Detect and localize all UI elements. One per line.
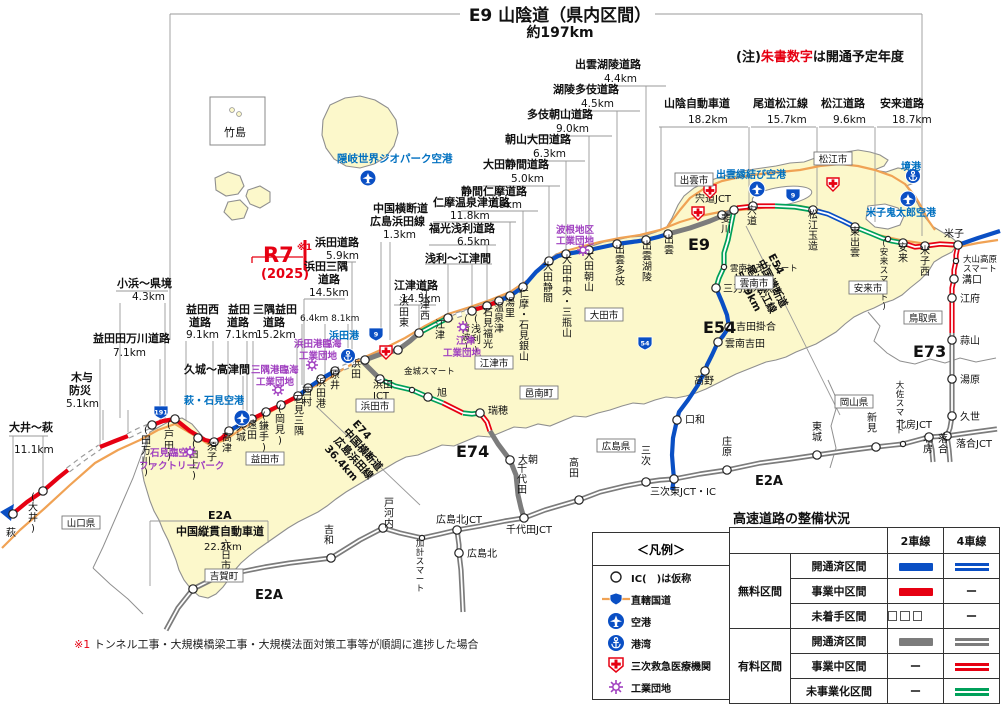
map-text-防災: 防災 [69, 383, 92, 397]
takeshima-label: 竹島 [224, 125, 246, 139]
ic-label-大朝: 大朝 [518, 453, 538, 466]
legend-item-label: 直轄国道 [631, 592, 671, 607]
map-text-18.7km: 18.7km [892, 114, 932, 126]
ic-node-庄原 [723, 466, 731, 474]
map-text-22.3km: 22.3km [204, 542, 242, 553]
page-subtitle: 約197km [400, 22, 720, 42]
ic-label-高津: 高津 [222, 431, 232, 455]
landmass-oki_c [224, 200, 248, 220]
industrial-park-icon-3 [457, 321, 469, 333]
ic-label-戸河内: 戸河内 [384, 497, 394, 530]
area-box-label-大田市: 大田市 [590, 310, 619, 322]
map-text-9.6km: 9.6km [833, 114, 866, 126]
ic-label-東出雲: 東出雲 [850, 225, 860, 259]
cell-4lane-開通済区間 [944, 629, 1000, 654]
status-row-無料区間-開通済区間: 無料区間開通済区間 [730, 554, 1000, 579]
swatch-double-gray [955, 636, 989, 648]
area-box-label-江津市: 江津市 [480, 358, 509, 370]
footnote-mark: ※1 [74, 638, 90, 651]
map-text-5.0km: 5.0km [511, 173, 544, 185]
ic-node-宍道JCT [730, 206, 738, 214]
map-text-大田静間道路: 大田静間道路 [483, 157, 550, 171]
ic-label-出雲: 出雲 [664, 233, 674, 257]
col-header-4車線: 4車線 [944, 528, 1000, 554]
legend-item-label: 三次救急医療機関 [631, 658, 711, 673]
map-text-江津: 江津 [456, 335, 476, 347]
area-box-label-鳥取県: 鳥取県 [909, 313, 938, 325]
map-text-久城～高津間: 久城～高津間 [184, 362, 250, 376]
ic-node-口和 [673, 416, 681, 424]
ic-node-浜田東 [394, 346, 402, 354]
ic-label-大田中央・三瓶山: 大田中央・三瓶山 [562, 253, 572, 340]
cell-2lane-未事業化区間: ー [888, 679, 944, 704]
map-text-4.3km: 4.3km [132, 291, 165, 303]
map-text-工業団地: 工業団地 [299, 350, 338, 362]
cell-4lane-事業中区間 [944, 654, 1000, 679]
cell-4lane-未着手区間: ー [944, 604, 1000, 629]
area-box-label-益田市: 益田市 [251, 454, 280, 466]
status-label-開通済区間: 開通済区間 [791, 629, 888, 654]
red-number-note: (注)朱書数字は開通予定年度 [736, 46, 904, 65]
map-text-境港: 境港 [901, 160, 922, 173]
cell-2lane-開通済区間 [888, 629, 944, 654]
legend-box: ＜凡例＞ IC( )は仮称直轄国道空港港湾三次救急医療機関工業団地 [592, 532, 730, 700]
legend-title: ＜凡例＞ [593, 533, 729, 566]
ic-label-西村: 西村 [302, 387, 312, 409]
ic-label-大田朝山: 大田朝山 [584, 249, 594, 294]
ic-label-三次: 三次 [641, 446, 651, 468]
map-text-E2A: E2A [255, 588, 283, 603]
map-text-E54: E54 [703, 318, 736, 337]
sanin-expressway-map: 竹島萩(大井)(田万川)(戸田)(白上)須子高津久城遠田(鎌手)(岡見)石見三隅… [0, 0, 1001, 704]
note-suffix: は開通予定年度 [813, 50, 904, 65]
map-text-道路: 道路 [318, 272, 341, 286]
ic-node-金城スマート [409, 387, 414, 392]
ic-node-江津 [444, 314, 452, 322]
ic-node-雲南吉田 [714, 338, 722, 346]
col-header-2車線: 2車線 [888, 528, 944, 554]
map-text-(2025): (2025) [261, 267, 309, 282]
map-text-道路: 道路 [227, 315, 250, 329]
ic-label-米子: 米子 [944, 227, 964, 240]
status-label-未事業化区間: 未事業化区間 [791, 679, 888, 704]
ic-node-六日市 [189, 585, 197, 593]
map-text-E74: E74 [456, 442, 489, 461]
ic-label-安来: 安来 [898, 241, 908, 265]
landmass-oki_a [215, 172, 244, 196]
ic-label-出雲湖陵: 出雲湖陵 [642, 239, 652, 284]
cell-4lane-未事業化区間 [944, 679, 1000, 704]
ic-node-東城 [813, 451, 821, 459]
status-label-開通済区間: 開通済区間 [791, 554, 888, 579]
map-text-18.2km: 18.2km [688, 114, 728, 126]
ic-label-雲南吉田: 雲南吉田 [725, 337, 765, 350]
map-text-浜田三隅: 浜田三隅 [304, 259, 348, 273]
map-text-三隅港臨海: 三隅港臨海 [251, 364, 299, 376]
ic-label-宍道: 宍道 [747, 204, 757, 228]
swatch-bar-blue [899, 563, 933, 571]
area-box-label-岡山県: 岡山県 [840, 398, 869, 409]
route-shield-191: 191 [154, 406, 168, 419]
road-segment-e2a-hiroshima [457, 530, 463, 612]
status-table-title: 高速道路の整備状況 [733, 508, 850, 527]
ic-node-(大井) [39, 487, 47, 495]
ic-label-瑞穂: 瑞穂 [488, 404, 508, 417]
map-text-E73: E73 [913, 342, 946, 361]
ic-node-三次 [642, 478, 650, 486]
area-box-label-山口県: 山口県 [67, 519, 96, 530]
legend-item-label: 空港 [631, 614, 651, 629]
ic-label-庄原: 庄原 [722, 435, 732, 459]
map-text-15.2km: 15.2km [256, 329, 296, 341]
ic-label-口和: 口和 [685, 414, 705, 426]
no-lane-dash: ー [966, 585, 977, 598]
area-box-label-邑南町: 邑南町 [525, 388, 554, 400]
cell-2lane-開通済区間 [888, 554, 944, 579]
road-segment-e9-kiyo-bosai [100, 436, 128, 447]
ic-node-久世 [948, 412, 956, 420]
swatch-double-blue [955, 561, 989, 573]
map-text-6.4km 8.1km: 6.4km 8.1km [300, 314, 359, 324]
map-text-木与: 木与 [70, 370, 93, 384]
ic-label-蒜山: 蒜山 [960, 335, 980, 347]
ic-label-千代田JCT: 千代田JCT [506, 524, 553, 536]
map-text-浜田道路: 浜田道路 [315, 235, 360, 249]
road-segment-e9-dash-1 [68, 447, 100, 470]
status-table: 2車線4車線無料区間開通済区間事業中区間ー未着手区間ー有料区間開通済区間事業中区… [729, 527, 1000, 704]
cell-2lane-未着手区間 [888, 604, 944, 629]
map-text-ファクトリーパーク: ファクトリーパーク [139, 460, 224, 472]
map-text-福光浅利道路: 福光浅利道路 [428, 221, 496, 235]
ic-label-湯原: 湯原 [960, 373, 980, 386]
ic-node-蒜山 [948, 336, 956, 344]
map-text-E2A: E2A [208, 509, 232, 522]
swatch-bar-red [899, 588, 933, 596]
area-box-label-浜田市: 浜田市 [361, 401, 390, 413]
group-cell-無料区間: 無料区間 [730, 554, 791, 629]
cell-4lane-事業中区間: ー [944, 579, 1000, 604]
ic-label-大田静間: 大田静間 [543, 260, 553, 305]
ic-label-落合: 落合 [938, 433, 948, 456]
ic-node-雲南加茂スマート [721, 264, 726, 269]
map-text-松江道路: 松江道路 [821, 96, 866, 110]
map-text-道路: 道路 [189, 315, 212, 329]
airport-icon-米子鬼太郎空港 [900, 191, 916, 207]
area-box-label-松江市: 松江市 [819, 154, 848, 166]
swatch-bar-gray [899, 638, 933, 646]
airport-icon-隠岐世界ジオパーク空港 [360, 170, 376, 186]
map-text-小浜～県境: 小浜～県境 [116, 276, 172, 290]
ic-label-広島北: 広島北 [467, 547, 497, 560]
ic-label-斐川: 斐川 [721, 213, 731, 236]
ic-node-萩 [9, 510, 17, 518]
legend-item-label: IC( )は仮称 [631, 570, 691, 585]
ic-label-江府: 江府 [960, 292, 980, 305]
ic-label-広島北JCT: 広島北JCT [436, 513, 483, 526]
swatch-double-green [955, 686, 989, 698]
map-text-中国横断道: 中国横断道 [373, 201, 428, 215]
swatch-double-red [955, 661, 989, 673]
map-text-湖陵多伎道路: 湖陵多伎道路 [553, 82, 620, 96]
legend-item-label: 工業団地 [631, 680, 671, 695]
ic-label-新見: 新見 [867, 411, 877, 435]
map-text-中国縦貫自動車道: 中国縦貫自動車道 [176, 524, 264, 538]
no-lane-dash: ー [966, 610, 977, 623]
airport-icon-出雲縁結び空港 [749, 181, 765, 197]
status-row-有料区間-開通済区間: 有料区間開通済区間 [730, 629, 1000, 654]
map-text-山陰自動車道: 山陰自動車道 [664, 96, 730, 110]
map-text-広島浜田線: 広島浜田線 [370, 214, 425, 228]
ic-label-萩: 萩 [6, 527, 16, 539]
ic-label-久世: 久世 [960, 411, 980, 423]
ic-label-三次東JCT・IC: 三次東JCT・IC [650, 485, 716, 498]
map-text-浅利～江津間: 浅利～江津間 [425, 251, 491, 265]
footnote: ※1 トンネル工事・大規模橋梁工事・大規模法面対策工事等が順調に進捗した場合 [74, 636, 479, 652]
map-text-朝山大田道路: 朝山大田道路 [505, 132, 572, 146]
ic-label-(安来スマート): (安来スマート) [880, 239, 889, 312]
ic-node-瑞穂 [476, 409, 484, 417]
ic-label-落合JCT: 落合JCT [956, 437, 993, 450]
ic-node-大朝 [506, 456, 514, 464]
map-text-※1: ※1 [297, 242, 312, 253]
map-text-15.7km: 15.7km [767, 114, 807, 126]
ic-label-米子西: 米子西 [920, 244, 930, 278]
cell-4lane-開通済区間 [944, 554, 1000, 579]
ic-label-湯里: 湯里 [505, 296, 515, 320]
ic-node-湯原 [948, 375, 956, 383]
ic-label-千代田: 千代田 [517, 463, 527, 496]
ic-label-吉田掛合: 吉田掛合 [736, 320, 776, 333]
ic-node-高田 [575, 496, 583, 504]
ic-node-(戸田) [171, 415, 179, 423]
map-text-11.8km: 11.8km [450, 210, 490, 222]
industrial-icon [601, 678, 631, 696]
ic-node-三次東JCT・IC [670, 475, 678, 483]
ic-label-大山高原スマート: 大山高原スマート [963, 254, 997, 275]
group-cell-有料区間: 有料区間 [730, 629, 791, 704]
ic-label-大佐スマート: 大佐スマート [896, 380, 905, 436]
port-icon-浜田港 [341, 349, 356, 364]
map-text-14.5km: 14.5km [401, 293, 441, 305]
map-text-大井～萩: 大井～萩 [9, 420, 53, 434]
ic-node-高野 [701, 367, 709, 375]
status-label-未着手区間: 未着手区間 [791, 604, 888, 629]
legend-item-airport: 空港 [593, 610, 729, 632]
ic-node-(田万川) [148, 421, 156, 429]
ic-node-江府 [948, 294, 956, 302]
map-text-仁摩温泉津道路: 仁摩温泉津道路 [433, 195, 511, 209]
ic-label-金城スマート: 金城スマート [404, 366, 455, 377]
ic-label-仁摩・石見銀山: 仁摩・石見銀山 [519, 288, 529, 363]
map-text-萩・石見空港: 萩・石見空港 [183, 394, 245, 407]
ic-node-旭 [424, 393, 432, 401]
map-text-隠岐世界ジオパーク空港: 隠岐世界ジオパーク空港 [337, 152, 453, 165]
map-text-5.1km: 5.1km [66, 398, 99, 410]
map-text-益田: 益田 [228, 302, 250, 316]
map-text-E9: E9 [688, 235, 710, 254]
map-text-道路: 道路 [263, 315, 286, 329]
ic-label-石見福光: 石見福光 [483, 308, 493, 351]
map-text-7.1km: 7.1km [225, 329, 258, 341]
ic-label-松江玉造: 松江玉造 [808, 208, 818, 253]
legend-items: IC( )は仮称直轄国道空港港湾三次救急医療機関工業団地 [593, 566, 729, 698]
no-lane-dash: ー [910, 685, 921, 698]
ic-label-浜田港: 浜田港 [316, 377, 326, 410]
status-label-事業中区間: 事業中区間 [791, 654, 888, 679]
cell-2lane-事業中区間: ー [888, 654, 944, 679]
map-text-11.1km: 11.1km [14, 444, 54, 456]
ic-label-東城: 東城 [812, 420, 822, 444]
ic-label-溝口: 溝口 [962, 273, 982, 286]
map-text-出雲湖陵道路: 出雲湖陵道路 [575, 57, 642, 71]
landmass-oki_b [246, 186, 270, 208]
ic-label-温泉津: 温泉津 [494, 302, 504, 335]
ic-node-新見 [872, 443, 880, 451]
footnote-text: トンネル工事・大規模橋梁工事・大規模法面対策工事等が順調に進捗した場合 [90, 638, 478, 651]
ic-label-吉和: 吉和 [324, 524, 334, 547]
map-text-益田田万川道路: 益田田万川道路 [93, 331, 171, 345]
no-lane-dash: ー [910, 660, 921, 673]
svg-text:191: 191 [154, 409, 168, 417]
map-text-工業団地: 工業団地 [556, 235, 595, 247]
area-box-label-雲南市: 雲南市 [740, 278, 769, 290]
legend-item-port: 港湾 [593, 632, 729, 654]
map-text-出雲縁結び空港: 出雲縁結び空港 [716, 168, 787, 181]
airport-icon [601, 612, 631, 630]
ic-node-江津西 [415, 329, 423, 337]
note-red-part: 朱書数字 [761, 50, 813, 65]
national-route-icon [601, 591, 631, 607]
map-text-益田西: 益田西 [186, 302, 219, 316]
ic-node-米子 [954, 241, 962, 249]
hospital-icon [601, 656, 631, 674]
ic-label-旭: 旭 [437, 387, 447, 399]
map-text-7.1km: 7.1km [113, 347, 146, 359]
ic-node-(安来スマート) [885, 236, 890, 241]
map-text-14.5km: 14.5km [309, 287, 349, 299]
port-icon [601, 634, 631, 652]
map-text-江津道路: 江津道路 [394, 278, 439, 292]
map-text-E2A: E2A [755, 474, 783, 489]
ic-node-浜田 [361, 356, 369, 364]
map-text-米子鬼太郎空港: 米子鬼太郎空港 [866, 206, 937, 219]
ic-circle-icon [601, 569, 631, 585]
ic-node-北房JCT [925, 433, 933, 441]
map-text-多伎朝山道路: 多伎朝山道路 [527, 107, 594, 121]
legend-item-national-route: 直轄国道 [593, 588, 729, 610]
legend-item-ic-circle: IC( )は仮称 [593, 566, 729, 588]
svg-text:9: 9 [374, 331, 379, 339]
airport-icon-萩・石見空港 [234, 410, 250, 426]
ic-node-三刀屋木次 [712, 284, 720, 292]
map-text-安来道路: 安来道路 [880, 96, 925, 110]
ic-node-溝口 [950, 275, 958, 283]
status-table-header-row: 2車線4車線 [730, 528, 1000, 554]
map-text-6.5km: 6.5km [457, 236, 490, 248]
route-shield-9: 9 [369, 328, 383, 341]
map-text-石見臨空: 石見臨空 [149, 447, 189, 459]
ic-label-高田: 高田 [569, 456, 579, 480]
area-box-label-広島県: 広島県 [602, 441, 631, 453]
ic-node-広島北JCT [453, 526, 461, 534]
takeshima-islet [237, 112, 242, 117]
area-box-label-吉賀町: 吉賀町 [210, 571, 239, 583]
swatch-unstarted [888, 611, 922, 621]
status-table-corner [730, 528, 888, 554]
map-text-工業団地: 工業団地 [256, 376, 295, 388]
map-text-尾道松江線: 尾道松江線 [752, 96, 808, 110]
map-text-9.1km: 9.1km [186, 329, 219, 341]
legend-item-industrial: 工業団地 [593, 676, 729, 698]
map-text-R7: R7 [263, 243, 294, 267]
area-box-label-安来市: 安来市 [854, 283, 883, 295]
map-text-三隅益田: 三隅益田 [253, 302, 297, 316]
legend-item-label: 港湾 [631, 636, 651, 651]
prefecture-border-1 [93, 568, 143, 614]
cell-2lane-事業中区間 [888, 579, 944, 604]
ic-label-江津: 江津 [435, 319, 445, 342]
legend-item-hospital: 三次救急医療機関 [593, 654, 729, 676]
ic-node-大佐スマート [900, 441, 905, 446]
ic-node-広島北 [455, 549, 463, 557]
map-text-波根地区: 波根地区 [556, 224, 595, 236]
area-box-label-出雲市: 出雲市 [680, 175, 709, 187]
ic-label-加計スマート: 加計スマート [416, 538, 425, 594]
takeshima-islet [230, 108, 235, 113]
ic-label-出雲多伎: 出雲多伎 [615, 243, 625, 288]
status-label-事業中区間: 事業中区間 [791, 579, 888, 604]
map-text-浜田港臨海: 浜田港臨海 [294, 338, 342, 350]
road-segment-e9-yasugi-yonago [903, 243, 958, 247]
svg-text:9: 9 [791, 192, 796, 200]
map-text-1.3km: 1.3km [383, 229, 416, 241]
ic-label-原井: 原井 [330, 369, 340, 392]
ic-node-吉和 [327, 554, 335, 562]
ic-node-千代田JCT [520, 514, 528, 522]
note-prefix: (注) [736, 50, 761, 65]
svg-text:54: 54 [640, 340, 650, 348]
ic-node-大山高原スマート [953, 258, 958, 263]
ic-label-高野: 高野 [694, 374, 714, 387]
